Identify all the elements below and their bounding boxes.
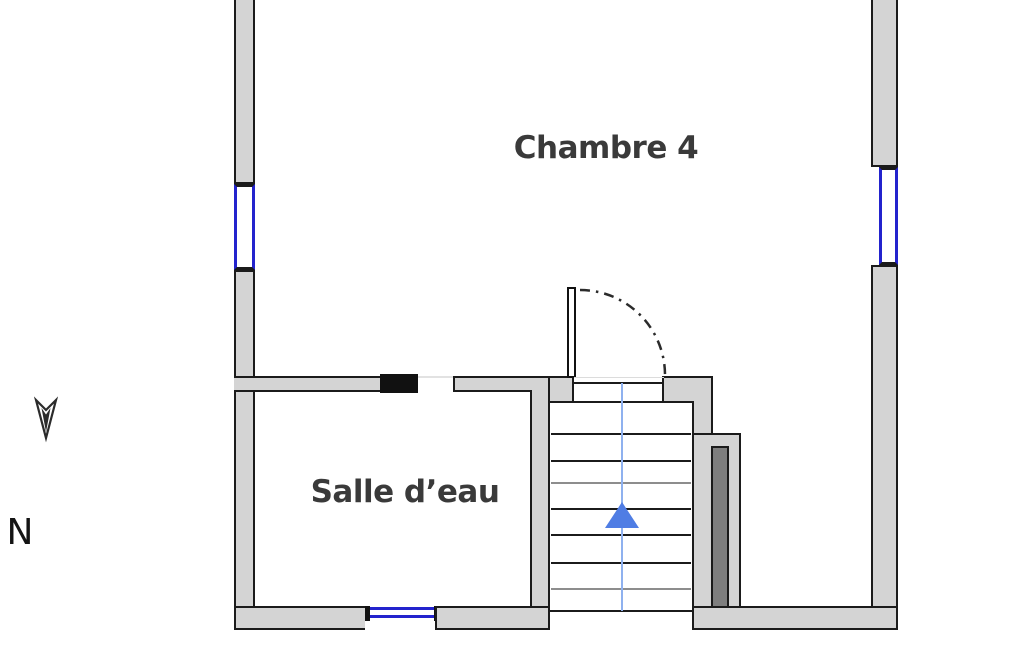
right-window xyxy=(879,167,898,265)
right-wall-upper xyxy=(871,0,898,167)
door-opening-threshold xyxy=(418,376,453,378)
bottom-wall-right xyxy=(692,606,898,630)
stair-corner-top-right xyxy=(662,376,713,403)
window-glazing xyxy=(370,607,434,618)
bottom-wall-left xyxy=(234,606,369,630)
room-label-chambre4: Chambre 4 xyxy=(460,130,752,166)
north-arrow-icon xyxy=(36,400,56,438)
bathroom-stair-divider-wall xyxy=(530,390,550,610)
stair-guide-line xyxy=(621,383,623,611)
right-wall-lower xyxy=(871,265,898,630)
left-wall-upper xyxy=(234,0,255,184)
landing-threshold-line xyxy=(574,377,664,378)
door-swing-arc xyxy=(580,290,665,375)
wall-black-segment xyxy=(380,374,418,393)
room-label-salle-deau: Salle d’eau xyxy=(300,474,510,510)
stair-landing-line xyxy=(573,382,663,384)
left-wall-lower xyxy=(234,270,255,630)
door-leaf xyxy=(567,287,576,378)
bottom-window xyxy=(365,604,439,632)
stair-direction-arrow xyxy=(605,502,639,528)
left-window xyxy=(234,184,255,270)
bathroom-top-wall xyxy=(234,376,382,392)
duct-shaft xyxy=(711,446,729,608)
stair-corner-top-left xyxy=(548,376,574,403)
floorplan-canvas: Chambre 4 Salle d’eau N xyxy=(0,0,1025,650)
bottom-wall-mid xyxy=(435,606,550,630)
compass-north-label: N xyxy=(0,512,42,553)
